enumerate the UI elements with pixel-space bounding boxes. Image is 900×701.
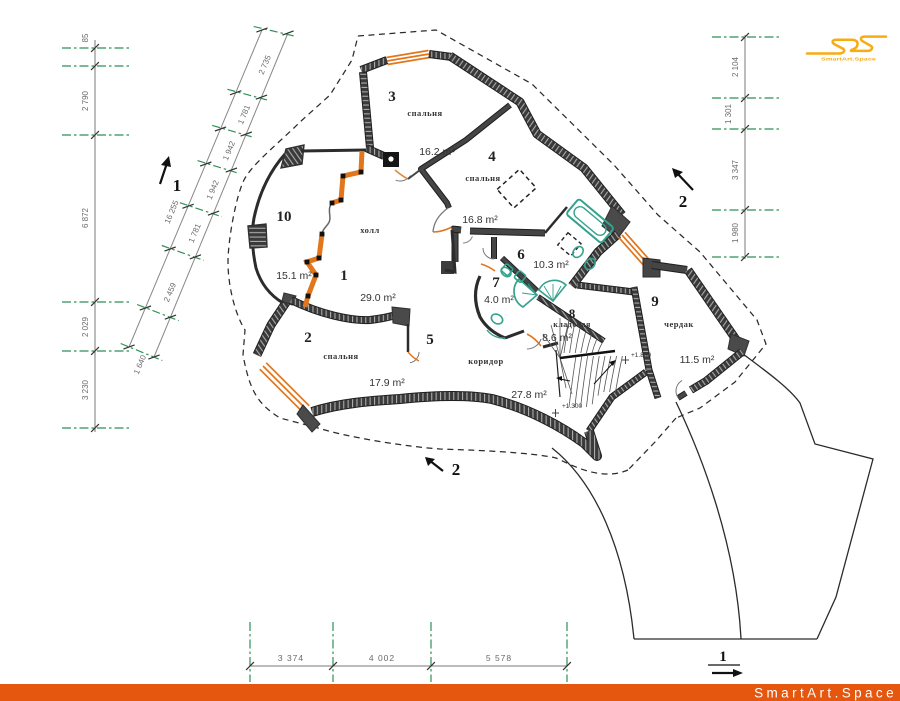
svg-text:15.1 m²: 15.1 m² bbox=[276, 270, 312, 282]
svg-text:1: 1 bbox=[719, 649, 727, 665]
svg-text:8: 8 bbox=[569, 306, 576, 321]
svg-text:спальня: спальня bbox=[323, 351, 358, 361]
svg-text:3: 3 bbox=[388, 89, 396, 105]
svg-text:16.2 m²: 16.2 m² bbox=[419, 146, 455, 158]
svg-text:17.9 m²: 17.9 m² bbox=[369, 377, 405, 389]
svg-text:16.8 m²: 16.8 m² bbox=[462, 214, 498, 226]
svg-text:чердак: чердак bbox=[664, 319, 694, 329]
svg-text:спальня: спальня bbox=[465, 173, 500, 183]
svg-text:11.5 m²: 11.5 m² bbox=[680, 354, 715, 366]
svg-text:+1.880: +1.880 bbox=[631, 352, 651, 359]
svg-text:холл: холл bbox=[360, 225, 380, 235]
svg-text:1: 1 bbox=[173, 176, 182, 195]
svg-text:3 347: 3 347 bbox=[731, 159, 740, 180]
svg-text:6 872: 6 872 bbox=[81, 207, 90, 228]
svg-text:3 230: 3 230 bbox=[81, 379, 90, 400]
svg-text:10.3 m²: 10.3 m² bbox=[533, 259, 569, 271]
svg-text:4 002: 4 002 bbox=[369, 653, 395, 663]
svg-text:1 980: 1 980 bbox=[731, 222, 740, 243]
svg-text:1 301: 1 301 bbox=[724, 103, 733, 124]
svg-text:2: 2 bbox=[304, 330, 312, 346]
svg-text:2: 2 bbox=[452, 460, 461, 479]
svg-text:кладовая: кладовая bbox=[553, 320, 591, 329]
svg-text:1: 1 bbox=[340, 268, 348, 284]
svg-text:10: 10 bbox=[277, 209, 292, 225]
svg-text:спальня: спальня bbox=[407, 108, 442, 118]
svg-text:29.0 m²: 29.0 m² bbox=[360, 292, 396, 304]
svg-text:5: 5 bbox=[426, 332, 434, 348]
svg-text:4.0 m²: 4.0 m² bbox=[484, 294, 514, 306]
svg-text:3 374: 3 374 bbox=[278, 653, 304, 663]
svg-text:5 578: 5 578 bbox=[486, 653, 512, 663]
svg-text:SmartArt.Space: SmartArt.Space bbox=[754, 686, 897, 701]
svg-text:4: 4 bbox=[488, 149, 496, 165]
svg-text:9: 9 bbox=[651, 294, 659, 310]
svg-text:SmartArt.Space: SmartArt.Space bbox=[821, 57, 877, 62]
svg-text:8.6 m²: 8.6 m² bbox=[542, 332, 572, 344]
svg-text:+1.300: +1.300 bbox=[562, 403, 582, 410]
svg-text:27.8 m²: 27.8 m² bbox=[511, 389, 547, 401]
svg-text:коридор: коридор bbox=[468, 356, 503, 366]
svg-text:2 104: 2 104 bbox=[731, 56, 740, 77]
svg-text:2: 2 bbox=[679, 192, 688, 211]
svg-text:6: 6 bbox=[517, 247, 525, 263]
svg-text:85: 85 bbox=[81, 33, 90, 42]
svg-text:7: 7 bbox=[492, 275, 500, 291]
svg-text:2 029: 2 029 bbox=[81, 316, 90, 337]
svg-text:2 790: 2 790 bbox=[81, 90, 90, 111]
